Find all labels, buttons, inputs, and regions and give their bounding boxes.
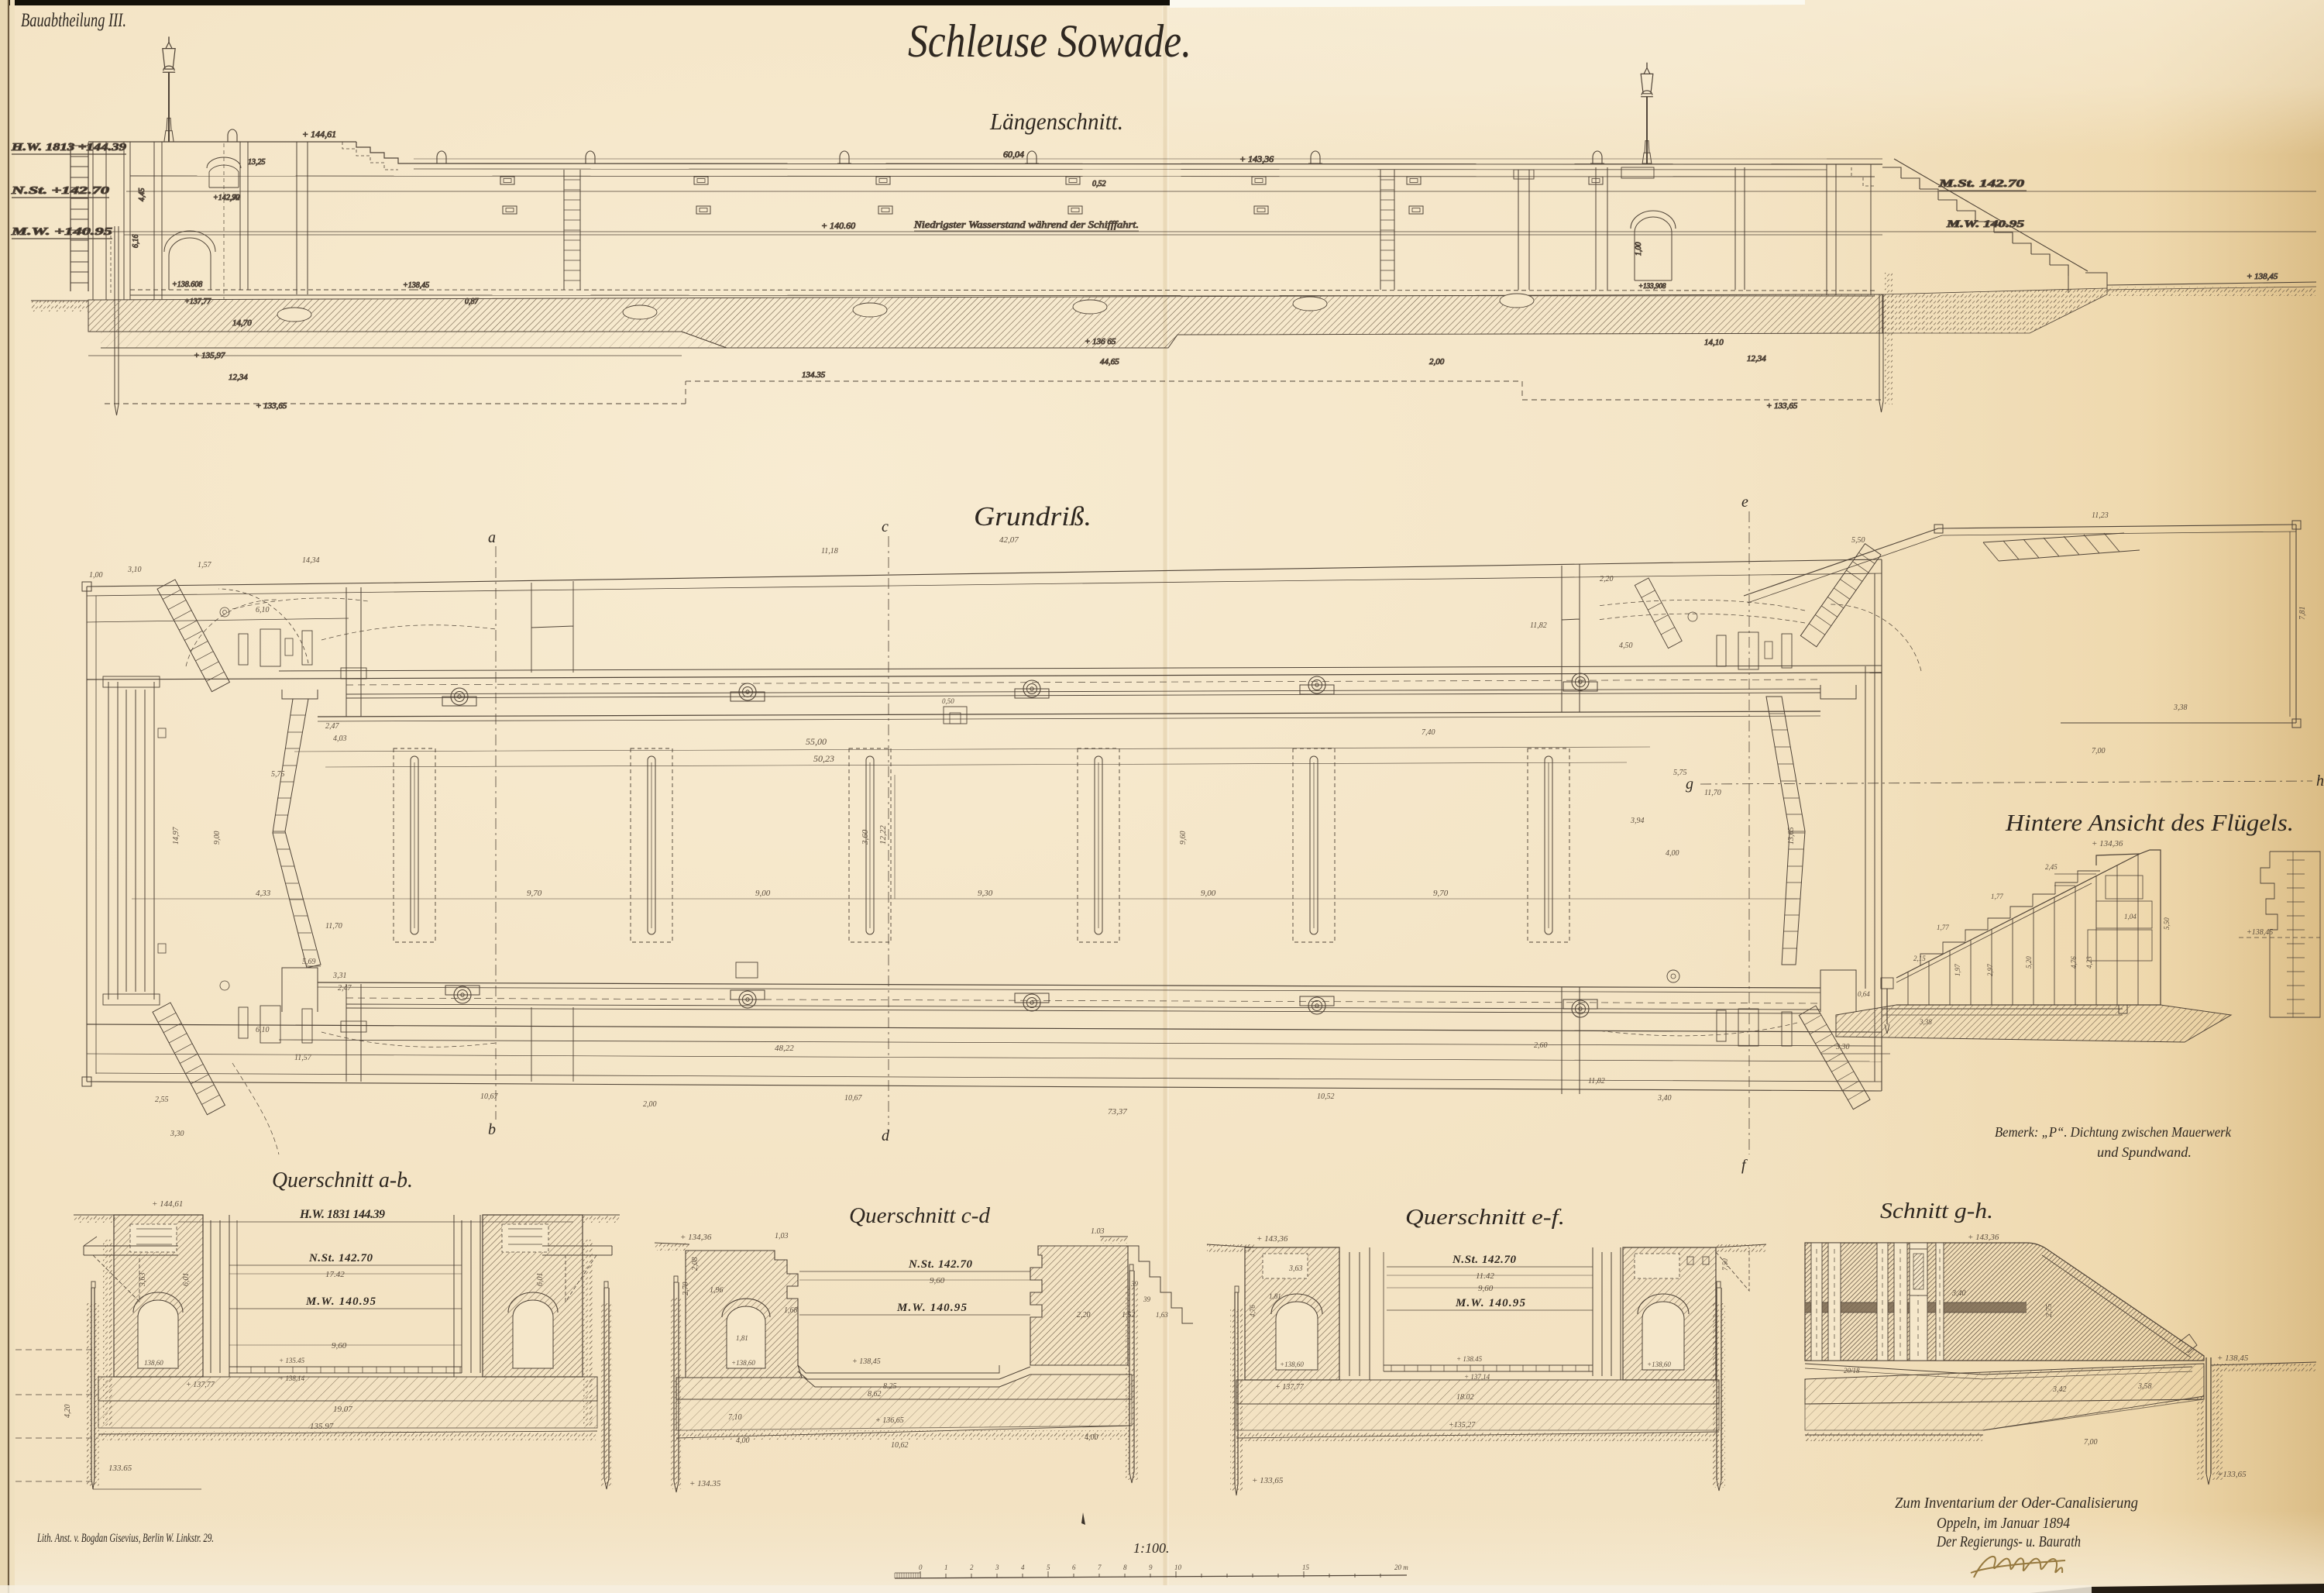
svg-text:11,57: 11,57: [294, 1054, 312, 1062]
svg-text:N.St. 142.70: N.St. 142.70: [908, 1258, 973, 1271]
svg-text:7: 7: [1098, 1564, 1102, 1571]
svg-text:50,23: 50,23: [813, 753, 834, 764]
svg-text:N.St. 142.70: N.St. 142.70: [308, 1252, 373, 1264]
svg-text:Der Regierungs- u. Baurath: Der Regierungs- u. Baurath: [1936, 1533, 2081, 1550]
svg-text:3,58: 3,58: [2137, 1382, 2152, 1391]
svg-text:4,45: 4,45: [138, 188, 146, 202]
svg-text:73,37: 73,37: [1108, 1107, 1127, 1116]
svg-text:9,70: 9,70: [527, 889, 542, 898]
svg-text:e: e: [1741, 494, 1748, 511]
svg-text:0,52: 0,52: [1092, 180, 1106, 188]
svg-text:18.02: 18.02: [1456, 1393, 1474, 1402]
svg-text:+ 138,45: + 138,45: [852, 1357, 881, 1366]
svg-text:H.W. 1813 +144.39: H.W. 1813 +144.39: [11, 142, 126, 153]
svg-text:13,65: 13,65: [1787, 827, 1796, 845]
svg-text:2,45: 2,45: [2045, 863, 2058, 871]
svg-text:M.W. +140.95: M.W. +140.95: [10, 226, 112, 238]
svg-text:0,64: 0,64: [1858, 990, 1870, 998]
svg-text:7,40: 7,40: [1422, 728, 1435, 737]
svg-text:60,04: 60,04: [1003, 149, 1024, 160]
svg-text:55,00: 55,00: [806, 736, 827, 747]
svg-text:3,60: 3,60: [861, 829, 870, 845]
svg-text:11,23: 11,23: [2092, 511, 2109, 520]
svg-text:9,00: 9,00: [755, 889, 771, 898]
svg-text:+ 144,61: + 144,61: [302, 129, 336, 139]
svg-text:M.W. 140.95: M.W. 140.95: [896, 1302, 968, 1314]
svg-text:6,10: 6,10: [256, 1026, 270, 1034]
svg-text:7,00: 7,00: [2092, 747, 2106, 755]
svg-text:11.42: 11.42: [1476, 1271, 1494, 1281]
svg-text:1,77: 1,77: [1937, 924, 1949, 931]
svg-text:+138,60: +138,60: [1647, 1361, 1671, 1368]
svg-text:2,60: 2,60: [1534, 1041, 1548, 1050]
svg-text:4,00: 4,00: [1666, 849, 1679, 858]
svg-text:+ 143,36: + 143,36: [1968, 1233, 1999, 1242]
svg-text:+ 140.60: + 140.60: [821, 220, 855, 231]
svg-text:5,50: 5,50: [2163, 917, 2171, 930]
svg-text:6,10: 6,10: [256, 606, 270, 614]
svg-text:9,60: 9,60: [1179, 831, 1188, 845]
svg-text:15: 15: [1302, 1564, 1310, 1571]
svg-text:2,75: 2,75: [2045, 1304, 2054, 1318]
svg-text:3,10: 3,10: [127, 566, 142, 574]
svg-text:2,20: 2,20: [1077, 1311, 1091, 1319]
svg-text:4,33: 4,33: [256, 889, 271, 898]
svg-text:1,63: 1,63: [1156, 1311, 1168, 1319]
svg-text:1:100.: 1:100.: [1133, 1540, 1170, 1556]
svg-text:+ 143,36: + 143,36: [1239, 153, 1274, 164]
svg-text:6,16: 6,16: [132, 235, 140, 249]
svg-text:Niedrigster Wasserstand währen: Niedrigster Wasserstand während der Schi…: [913, 218, 1139, 230]
svg-text:1,97: 1,97: [1954, 964, 1961, 976]
svg-text:9,60: 9,60: [1478, 1284, 1494, 1293]
svg-text:3,30: 3,30: [170, 1130, 184, 1138]
svg-text:g: g: [1686, 776, 1693, 793]
svg-text:1,81: 1,81: [1269, 1292, 1281, 1300]
svg-text:1,57: 1,57: [198, 561, 212, 569]
svg-text:+ 133,65: + 133,65: [256, 401, 287, 411]
svg-text:1,68: 1,68: [784, 1306, 798, 1315]
svg-text:+133,908: +133,908: [1638, 282, 1666, 290]
svg-text:14,97: 14,97: [172, 827, 180, 845]
svg-text:2,00: 2,00: [643, 1100, 657, 1109]
svg-text:7,00: 7,00: [2084, 1438, 2098, 1447]
svg-text:H.W. 1831 144.39: H.W. 1831 144.39: [299, 1208, 385, 1221]
svg-text:4,00: 4,00: [736, 1436, 750, 1445]
svg-text:2: 2: [970, 1564, 974, 1571]
svg-text:5,69: 5,69: [302, 958, 316, 966]
svg-text:48,22: 48,22: [775, 1044, 794, 1053]
svg-text:+ 144,61: + 144,61: [152, 1199, 183, 1209]
svg-text:Oppeln, im Januar 1894: Oppeln, im Januar 1894: [1937, 1515, 2070, 1532]
svg-text:+ 136 65: + 136 65: [1085, 337, 1116, 346]
svg-text:3,38: 3,38: [1919, 1018, 1932, 1026]
svg-text:19.07: 19.07: [333, 1405, 352, 1414]
svg-text:+ 134.35: + 134.35: [689, 1479, 721, 1488]
svg-text:+ 137,77: + 137,77: [186, 1381, 215, 1389]
svg-text:9: 9: [1149, 1564, 1153, 1571]
svg-text:20 m: 20 m: [1394, 1564, 1408, 1571]
svg-text:M.W. 140.95: M.W. 140.95: [1455, 1297, 1526, 1309]
svg-text:1.03: 1.03: [1091, 1227, 1105, 1236]
svg-text:7,81: 7,81: [2298, 607, 2307, 621]
svg-text:4,03: 4,03: [333, 735, 347, 743]
svg-text:+138,45: +138,45: [403, 281, 429, 290]
svg-text:3,42: 3,42: [2052, 1385, 2067, 1394]
svg-text:3,38: 3,38: [2173, 704, 2188, 712]
svg-text:+ 134,36: + 134,36: [2092, 839, 2123, 848]
svg-text:Querschnitt a-b.: Querschnitt a-b.: [272, 1168, 413, 1192]
svg-text:a: a: [488, 529, 496, 546]
svg-text:1,04: 1,04: [2124, 913, 2137, 920]
svg-text:+ 138,45: + 138,45: [2217, 1354, 2249, 1363]
svg-text:Querschnitt e-f.: Querschnitt e-f.: [1405, 1205, 1565, 1230]
svg-text:+ 138.45: + 138.45: [1456, 1355, 1483, 1363]
svg-text:2,55: 2,55: [155, 1096, 169, 1104]
svg-text:10,67: 10,67: [480, 1092, 499, 1101]
svg-text:11,82: 11,82: [1530, 621, 1547, 630]
svg-text:+ 137,77: + 137,77: [1275, 1383, 1305, 1392]
svg-text:2,00: 2,00: [1429, 357, 1445, 366]
svg-text:4: 4: [1021, 1564, 1025, 1571]
svg-text:10: 10: [1174, 1564, 1182, 1571]
svg-text:5,75: 5,75: [1673, 769, 1687, 777]
svg-text:3,40: 3,40: [1657, 1094, 1672, 1103]
svg-text:h: h: [2316, 772, 2324, 790]
svg-text:8,62: 8,62: [868, 1390, 882, 1399]
svg-text:+ 136,65: + 136,65: [875, 1416, 904, 1425]
svg-text:2,70: 2,70: [682, 1282, 690, 1296]
svg-text:10,67: 10,67: [844, 1094, 863, 1103]
svg-text:3,63: 3,63: [139, 1273, 147, 1288]
svg-text:12,34: 12,34: [229, 373, 248, 382]
svg-text:10,52: 10,52: [1317, 1092, 1335, 1101]
svg-text:+138.608: +138.608: [172, 280, 202, 289]
svg-text:4,23: 4,23: [2085, 956, 2093, 969]
svg-text:M.St. 142.70: M.St. 142.70: [1937, 178, 2024, 190]
svg-text:4,50: 4,50: [1619, 642, 1633, 650]
svg-text:6,01: 6,01: [182, 1273, 191, 1287]
svg-text:8: 8: [1123, 1564, 1127, 1571]
svg-text:3,30: 3,30: [1835, 1043, 1850, 1051]
svg-text:c: c: [882, 518, 889, 535]
svg-text:Bemerk: „P“. Dichtung zwischen: Bemerk: „P“. Dichtung zwischen Mauerwerk: [1995, 1124, 2232, 1140]
svg-text:7,10: 7,10: [728, 1413, 742, 1422]
svg-text:Querschnitt c-d: Querschnitt c-d: [849, 1203, 990, 1228]
svg-text:Lith. Anst. v. Bogdan Gisevius: Lith. Anst. v. Bogdan Gisevius, Berlin W…: [36, 1532, 214, 1545]
svg-text:Schleuse Sowade.: Schleuse Sowade.: [908, 15, 1191, 67]
svg-text:11,70: 11,70: [1704, 789, 1721, 797]
svg-text:5,75: 5,75: [271, 770, 285, 779]
svg-text:+ 135.45: + 135.45: [279, 1357, 305, 1364]
svg-text:13,25: 13,25: [248, 158, 266, 167]
svg-text:+138,60: +138,60: [731, 1359, 755, 1367]
svg-text:138,60: 138,60: [144, 1359, 163, 1367]
svg-text:4,76: 4,76: [1249, 1305, 1257, 1317]
svg-text:12,34: 12,34: [1747, 354, 1766, 363]
svg-text:+135,27: +135,27: [1449, 1421, 1476, 1430]
svg-text:135.97: 135.97: [310, 1422, 334, 1431]
svg-text:17.42: 17.42: [325, 1270, 345, 1279]
svg-text:1,00: 1,00: [89, 571, 103, 580]
svg-text:4,20: 4,20: [64, 1405, 72, 1419]
svg-text:14,34: 14,34: [302, 556, 320, 565]
svg-text:N.St. 142.70: N.St. 142.70: [1452, 1254, 1517, 1266]
svg-text:3,40: 3,40: [1951, 1289, 1966, 1298]
svg-text:42,07: 42,07: [999, 535, 1019, 545]
svg-text:Zum Inventarium der Oder-Canal: Zum Inventarium der Oder-Canalisierung: [1895, 1495, 2138, 1512]
svg-text:b: b: [488, 1121, 496, 1138]
svg-text:1,77: 1,77: [1991, 893, 2003, 900]
svg-text:4,76: 4,76: [2070, 956, 2078, 969]
svg-text:+ 134,36: + 134,36: [680, 1233, 712, 1242]
svg-text:5,50: 5,50: [1851, 536, 1865, 545]
svg-text:10,62: 10,62: [891, 1441, 909, 1450]
svg-text:+138,60: +138,60: [1280, 1361, 1304, 1368]
svg-text:5: 5: [1047, 1564, 1050, 1571]
svg-text:1: 1: [944, 1564, 948, 1571]
svg-text:11,70: 11,70: [325, 922, 342, 931]
svg-text:Hintere Ansicht des Flügels.: Hintere Ansicht des Flügels.: [2005, 809, 2294, 836]
svg-text:11,82: 11,82: [1588, 1077, 1605, 1086]
svg-text:9,30: 9,30: [978, 889, 993, 898]
svg-text:5,20: 5,20: [2025, 956, 2033, 969]
svg-text:1,81: 1,81: [736, 1334, 748, 1342]
svg-text:9,60: 9,60: [930, 1276, 945, 1285]
svg-text:44,65: 44,65: [1100, 357, 1119, 366]
svg-text:+ 138,45: + 138,45: [2247, 272, 2278, 281]
svg-text:4,00: 4,00: [1085, 1433, 1098, 1442]
svg-text:3,94: 3,94: [1630, 817, 1645, 825]
svg-text:0: 0: [919, 1564, 923, 1571]
svg-text:134.35: 134.35: [802, 370, 826, 380]
svg-text:2,72: 2,72: [226, 194, 240, 202]
svg-text:3,31: 3,31: [332, 972, 347, 980]
svg-text:+138,45: +138,45: [2247, 928, 2273, 937]
svg-text:3,63: 3,63: [1288, 1264, 1303, 1273]
svg-text:2,97: 2,97: [1986, 964, 1994, 976]
svg-text:1,03: 1,03: [775, 1232, 789, 1240]
svg-text:+ 133,65: + 133,65: [1766, 401, 1798, 411]
svg-text:d: d: [882, 1127, 890, 1144]
svg-text:N.St. +142.70: N.St. +142.70: [10, 185, 109, 197]
svg-text:0,50: 0,50: [942, 697, 954, 705]
svg-text:9,00: 9,00: [213, 831, 222, 845]
svg-text:Grundriß.: Grundriß.: [974, 501, 1092, 532]
svg-text:11,18: 11,18: [821, 547, 838, 556]
svg-text:7,50: 7,50: [1721, 1258, 1729, 1271]
svg-text:2,15: 2,15: [1913, 955, 1926, 962]
svg-text:Bauabtheilung III.: Bauabtheilung III.: [21, 10, 126, 31]
svg-text:1,96: 1,96: [710, 1286, 724, 1295]
svg-text:2,08: 2,08: [691, 1258, 700, 1271]
svg-text:2,47: 2,47: [338, 984, 352, 993]
svg-text:2,20: 2,20: [1600, 575, 1614, 583]
svg-text:133.65: 133.65: [108, 1464, 132, 1473]
svg-text:3: 3: [995, 1564, 999, 1571]
svg-text:+ 133,65: + 133,65: [1252, 1476, 1284, 1485]
svg-text:6,01: 6,01: [536, 1273, 545, 1287]
svg-text:+ 143,36: + 143,36: [1257, 1234, 1288, 1244]
svg-text:9,70: 9,70: [1433, 889, 1449, 898]
svg-text:1,00: 1,00: [1635, 243, 1643, 256]
svg-text:12,22: 12,22: [878, 825, 888, 845]
svg-text:9,60: 9,60: [332, 1341, 347, 1350]
svg-text:Längenschnitt.: Längenschnitt.: [989, 108, 1123, 135]
svg-text:Schnitt g-h.: Schnitt g-h.: [1880, 1199, 1993, 1223]
svg-text:39: 39: [1143, 1295, 1151, 1303]
svg-text:9,00: 9,00: [1201, 889, 1216, 898]
svg-text:M.W. 140.95: M.W. 140.95: [305, 1295, 376, 1308]
svg-text:2,47: 2,47: [325, 722, 340, 731]
svg-text:6: 6: [1072, 1564, 1076, 1571]
svg-text:und Spundwand.: und Spundwand.: [2097, 1144, 2192, 1160]
svg-text:14,10: 14,10: [1704, 338, 1724, 347]
svg-text:+133,65: +133,65: [2217, 1470, 2247, 1479]
